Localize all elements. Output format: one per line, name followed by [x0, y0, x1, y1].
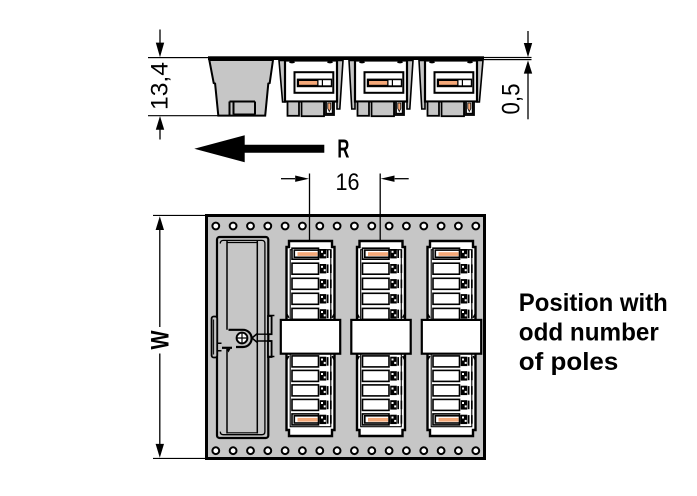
- svg-text:16: 16: [336, 169, 360, 196]
- svg-text:of poles: of poles: [519, 348, 619, 376]
- svg-text:Position with: Position with: [519, 289, 668, 317]
- svg-text:13,4: 13,4: [146, 62, 173, 110]
- svg-text:0,5: 0,5: [498, 84, 526, 115]
- svg-text:W: W: [147, 330, 175, 349]
- svg-text:R: R: [337, 136, 349, 164]
- svg-text:odd number: odd number: [519, 318, 659, 346]
